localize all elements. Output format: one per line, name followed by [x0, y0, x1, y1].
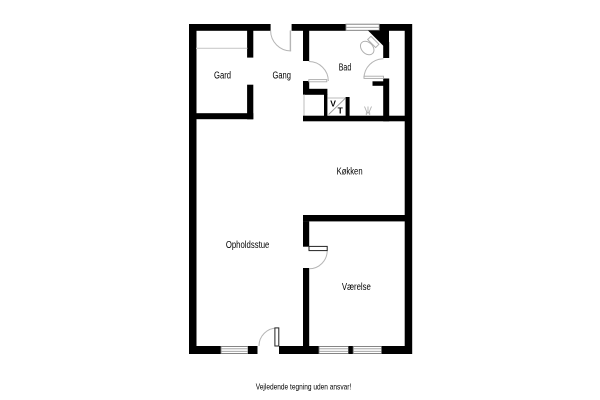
svg-text:Gard: Gard: [214, 71, 231, 82]
svg-text:Køkken: Køkken: [337, 167, 363, 178]
svg-text:Værelse: Værelse: [342, 282, 371, 293]
svg-text:V: V: [330, 98, 336, 108]
svg-text:Opholdsstue: Opholdsstue: [226, 240, 270, 251]
svg-text:T: T: [338, 106, 344, 116]
svg-text:Bad: Bad: [339, 63, 352, 74]
svg-text:Gang: Gang: [272, 71, 291, 82]
svg-text:Vejledende tegning uden ansvar: Vejledende tegning uden ansvar!: [256, 382, 352, 392]
